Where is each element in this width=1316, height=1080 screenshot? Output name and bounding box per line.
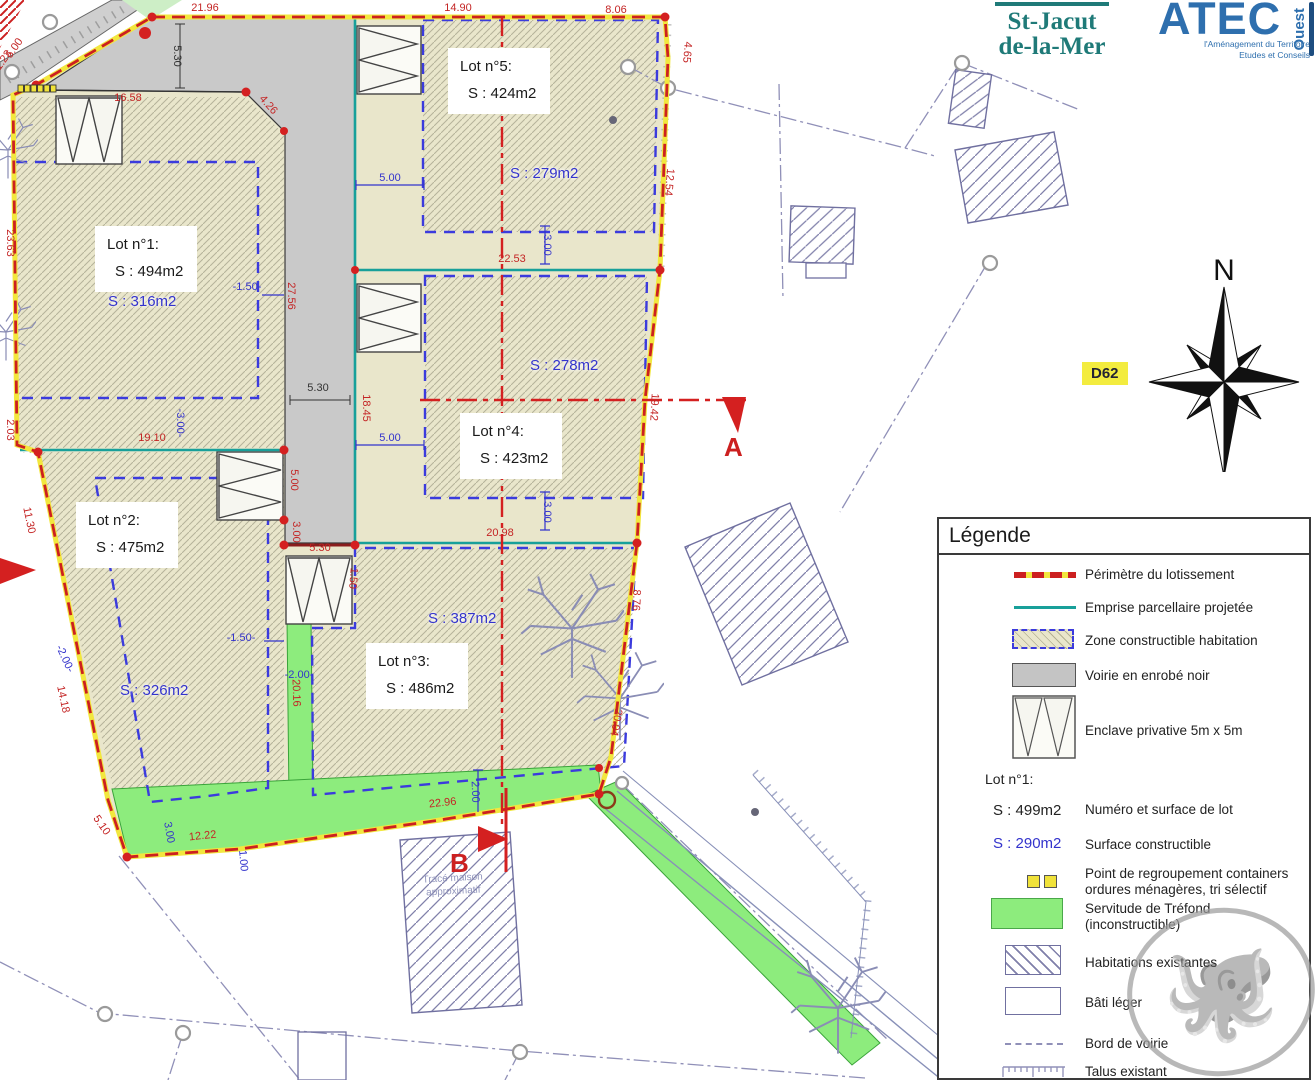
dimension-label: 2.03	[4, 419, 16, 440]
dimension-label: 14.18	[54, 685, 71, 714]
atec-side-bar	[1309, 2, 1314, 56]
legend-lot-example-surface: S : 499m2	[993, 802, 1061, 819]
dimension-label: 3.00	[290, 521, 302, 542]
legend-containers-label: Point de regroupement containers ordures…	[1085, 866, 1288, 897]
legend-title: Légende	[939, 519, 1309, 555]
dimension-label: 8.06	[605, 4, 626, 16]
dimension-label: 5.10	[90, 813, 112, 837]
dimension-label: 18.45	[360, 394, 372, 422]
legend-perimeter-label: Périmètre du lotissement	[1085, 567, 1234, 583]
lot3-hatch	[312, 548, 636, 795]
atec-logo-name: ATEC	[1158, 0, 1310, 38]
lot3-surface: S : 486m2	[378, 675, 454, 702]
lot3-title: Lot n°3:	[378, 648, 454, 675]
dimension-label: -3.00-	[174, 409, 186, 438]
lot4-surface: S : 423m2	[472, 445, 548, 472]
lot5-label: Lot n°5: S : 424m2	[448, 48, 550, 114]
section-label-a: A	[724, 432, 743, 462]
lot1-constructible-surface: S : 316m2	[108, 293, 176, 310]
dimension-label: 8.76	[629, 589, 642, 611]
legend-zone-swatch	[1012, 629, 1074, 649]
lot1-title: Lot n°1:	[107, 231, 183, 258]
dimension-label: -2.00-	[53, 643, 76, 674]
lot1-label: Lot n°1: S : 494m2	[95, 226, 197, 292]
dimension-label: 20.98	[486, 527, 514, 539]
dimension-label: 1.50	[346, 567, 360, 589]
legend-emprise-label: Emprise parcellaire projetée	[1085, 600, 1253, 616]
legend-constructible-label: Surface constructible	[1085, 837, 1211, 853]
lot3-constructible-surface: S : 387m2	[428, 610, 496, 627]
commune-logo-bar	[995, 2, 1109, 6]
dimension-label: 3.00	[541, 501, 553, 522]
legend-containers-swatch	[1027, 875, 1057, 888]
dimension-label: 3.00	[541, 234, 553, 255]
dimension-label: 19.10	[138, 432, 166, 444]
lot5-surface: S : 424m2	[460, 80, 536, 107]
dimension-label: 27.56	[285, 282, 297, 310]
dimension-label: -2.00-	[285, 669, 314, 681]
dimension-label: 2.00	[469, 781, 482, 803]
dimension-label: 5.30	[171, 45, 183, 66]
legend-voirie-label: Voirie en enrobé noir	[1085, 668, 1210, 684]
dimension-label: 12.54	[662, 168, 676, 196]
legend-constructible-value: S : 290m2	[993, 835, 1061, 852]
dimension-label: 1.00	[236, 850, 250, 872]
atec-logo: ATEC l'Aménagement du Territoire Etudes …	[1158, 0, 1310, 61]
dimension-label: 5.30	[309, 542, 330, 554]
lot2-label: Lot n°2: S : 475m2	[76, 502, 178, 568]
compass-star	[1149, 287, 1299, 472]
dimension-label: 5.00	[379, 432, 400, 444]
legend-bati-swatch	[1005, 987, 1061, 1015]
compass-rose: N	[1137, 252, 1312, 472]
dimension-label: 16.58	[114, 92, 142, 104]
commune-logo: St-Jacut de-la-Mer	[993, 2, 1111, 59]
dimension-label: 19.42	[647, 393, 660, 421]
legend-perimeter-swatch	[1014, 572, 1076, 578]
legend-habitations-swatch	[1005, 945, 1061, 975]
road-bottom-right	[602, 771, 958, 1080]
lot5-constructible-surface: S : 279m2	[510, 165, 578, 182]
legend-lot-example-title: Lot n°1:	[985, 771, 1033, 787]
site-plan-page: A B 21.9614.908.0616.584.264.6512.5422.5…	[0, 0, 1316, 1080]
lot3-label: Lot n°3: S : 486m2	[366, 643, 468, 709]
dimension-label: 23.63	[4, 229, 16, 257]
legend-talus-swatch	[999, 1061, 1069, 1080]
commune-name-line1: St-Jacut	[993, 9, 1111, 34]
lot4-constructible-surface: S : 278m2	[530, 357, 598, 374]
legend-surface-label: Numéro et surface de lot	[1085, 802, 1233, 818]
compass-north-label: N	[1213, 254, 1235, 287]
section-arrow-a	[722, 397, 746, 433]
dimension-label: 11.30	[20, 506, 37, 535]
legend-zone-label: Zone constructible habitation	[1085, 633, 1258, 649]
dimension-label: 21.96	[191, 2, 219, 14]
legend-voirie-swatch	[1012, 663, 1076, 687]
access-arrow	[0, 558, 36, 584]
dimension-label: 20.16	[290, 679, 303, 707]
atec-region: Ouest	[1291, 8, 1308, 51]
legend-talus-label: Talus existant	[1085, 1064, 1167, 1080]
dimension-label: 22.53	[498, 253, 526, 265]
commune-name-line2: de-la-Mer	[993, 34, 1111, 59]
dimension-label: 5.30	[307, 382, 328, 394]
octopus-icon: 🐙	[1154, 928, 1288, 1056]
dimension-label: 14.90	[444, 2, 472, 14]
lot1-surface: S : 494m2	[107, 258, 183, 285]
legend-emprise-swatch	[1014, 606, 1076, 609]
lot2-constructible-surface: S : 326m2	[120, 682, 188, 699]
dimension-label: -1.50-	[227, 632, 256, 644]
lot2-title: Lot n°2:	[88, 507, 164, 534]
lot5-title: Lot n°5:	[460, 53, 536, 80]
atec-subtitle-2: Etudes et Conseils	[1158, 50, 1310, 61]
lot2-surface: S : 475m2	[88, 534, 164, 561]
dimension-label: 5.00	[379, 172, 400, 184]
legend-servitude-swatch	[991, 898, 1063, 929]
dimension-label: -1.50-	[233, 281, 262, 293]
legend-bord-swatch	[1005, 1043, 1063, 1045]
lot4-title: Lot n°4:	[472, 418, 548, 445]
dimension-label: 4.65	[680, 41, 694, 63]
legend-enclave-label: Enclave privative 5m x 5m	[1085, 723, 1243, 739]
lot4-label: Lot n°4: S : 423m2	[460, 413, 562, 479]
legend-enclave-swatch	[1012, 695, 1076, 759]
road-ref-label: D62	[1082, 362, 1128, 385]
dimension-label: 5.00	[288, 469, 300, 490]
